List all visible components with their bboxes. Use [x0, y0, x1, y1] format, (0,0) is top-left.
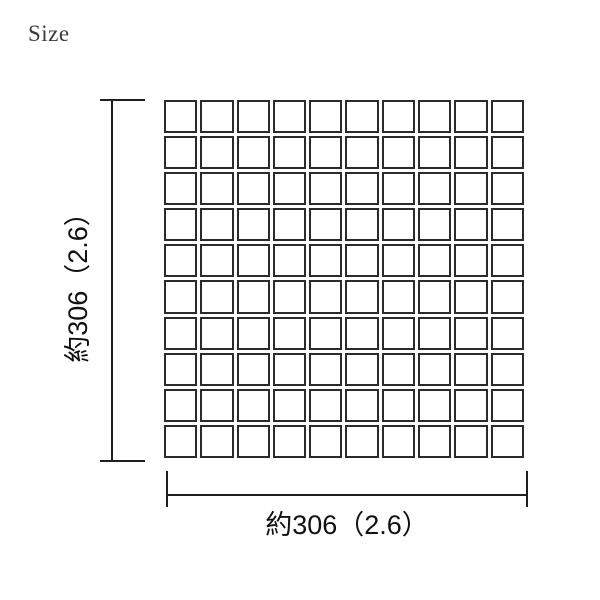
tile	[491, 280, 524, 313]
tile	[418, 425, 451, 458]
tile	[418, 100, 451, 133]
tile	[418, 244, 451, 277]
vertical-dimension-line	[111, 100, 113, 462]
size-heading: Size	[28, 21, 70, 47]
tile	[345, 280, 378, 313]
vertical-dimension-bottom-cap	[100, 460, 145, 462]
tile	[345, 100, 378, 133]
tile	[273, 425, 306, 458]
tile	[382, 100, 415, 133]
tile	[200, 425, 233, 458]
tile	[309, 280, 342, 313]
horizontal-dimension-right-tick	[526, 471, 528, 507]
tile	[273, 389, 306, 422]
tile	[237, 425, 270, 458]
tile	[454, 136, 487, 169]
tile	[345, 353, 378, 386]
tile	[382, 353, 415, 386]
tile	[345, 208, 378, 241]
tile	[382, 280, 415, 313]
size-diagram-canvas: Size 約306（2.6） 約306（2.6）	[0, 0, 600, 600]
tile	[237, 100, 270, 133]
tile	[454, 100, 487, 133]
tile	[200, 244, 233, 277]
tile	[237, 136, 270, 169]
tile	[237, 280, 270, 313]
tile	[382, 136, 415, 169]
tile	[491, 425, 524, 458]
tile	[164, 208, 197, 241]
tile	[382, 244, 415, 277]
horizontal-dimension-line	[166, 494, 528, 496]
tile	[454, 425, 487, 458]
tile	[491, 317, 524, 350]
tile	[418, 172, 451, 205]
width-dimension-label: 約306（2.6）	[167, 503, 527, 542]
tile	[454, 244, 487, 277]
tile	[491, 136, 524, 169]
tile	[237, 389, 270, 422]
tile	[491, 389, 524, 422]
tile	[345, 172, 378, 205]
tile	[345, 317, 378, 350]
tile	[309, 172, 342, 205]
tile	[164, 136, 197, 169]
tile	[345, 136, 378, 169]
tile	[345, 389, 378, 422]
tile	[491, 100, 524, 133]
tile	[273, 172, 306, 205]
tile	[273, 136, 306, 169]
tile	[200, 172, 233, 205]
tile	[164, 317, 197, 350]
tile	[273, 244, 306, 277]
vertical-dimension-top-cap	[100, 99, 145, 101]
tile	[273, 317, 306, 350]
tile	[164, 353, 197, 386]
height-dimension-label: 約306（2.6）	[63, 156, 93, 406]
tile	[418, 353, 451, 386]
tile	[200, 317, 233, 350]
tile	[200, 353, 233, 386]
tile	[237, 172, 270, 205]
tile	[237, 317, 270, 350]
tile	[309, 353, 342, 386]
tile	[491, 172, 524, 205]
tile	[200, 136, 233, 169]
tile	[382, 425, 415, 458]
tile	[200, 100, 233, 133]
horizontal-dimension-left-tick	[166, 471, 168, 507]
tile	[309, 317, 342, 350]
tile	[200, 280, 233, 313]
tile	[454, 280, 487, 313]
tile	[164, 172, 197, 205]
tile	[418, 280, 451, 313]
tile	[309, 389, 342, 422]
tile	[309, 425, 342, 458]
tile	[418, 136, 451, 169]
tile	[273, 280, 306, 313]
tile	[454, 389, 487, 422]
tile	[164, 280, 197, 313]
tile	[345, 244, 378, 277]
tile	[237, 208, 270, 241]
tile	[345, 425, 378, 458]
tile	[164, 389, 197, 422]
tile	[491, 353, 524, 386]
tile	[237, 353, 270, 386]
tile	[237, 244, 270, 277]
tile	[164, 100, 197, 133]
tile	[309, 208, 342, 241]
tile	[309, 136, 342, 169]
tile	[164, 425, 197, 458]
tile	[454, 317, 487, 350]
tile	[309, 244, 342, 277]
tile	[454, 208, 487, 241]
tile	[491, 244, 524, 277]
tile	[454, 172, 487, 205]
tile	[382, 208, 415, 241]
tile	[164, 244, 197, 277]
tile	[200, 208, 233, 241]
tile	[200, 389, 233, 422]
tile	[418, 317, 451, 350]
tile	[309, 100, 342, 133]
tile	[273, 100, 306, 133]
tile-grid	[164, 100, 524, 458]
tile	[382, 172, 415, 205]
tile	[273, 208, 306, 241]
tile	[273, 353, 306, 386]
tile	[454, 353, 487, 386]
tile	[491, 208, 524, 241]
tile	[382, 317, 415, 350]
tile	[382, 389, 415, 422]
tile	[418, 389, 451, 422]
tile	[418, 208, 451, 241]
